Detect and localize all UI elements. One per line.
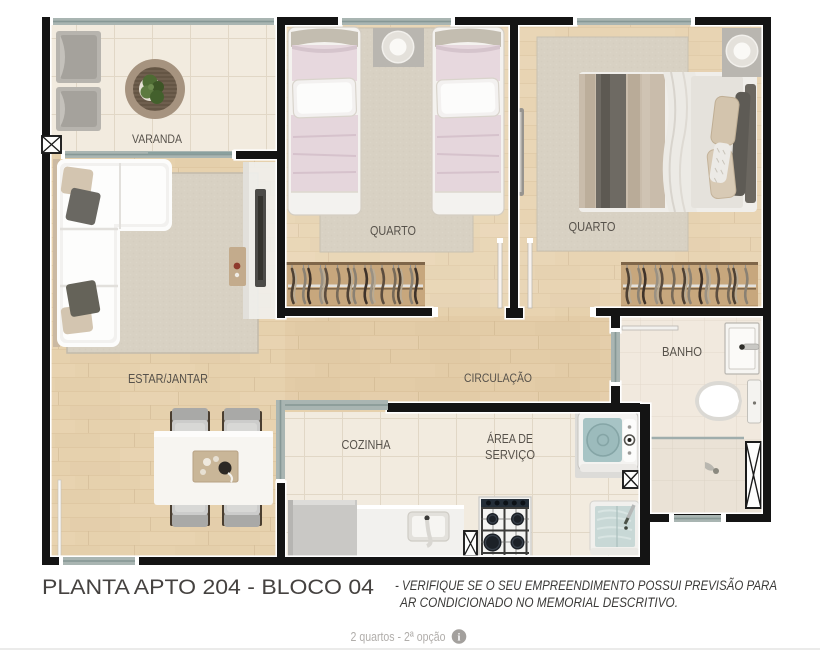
svg-text:PLANTA APTO 204 - BLOCO 04: PLANTA APTO 204 - BLOCO 04 — [42, 575, 374, 599]
svg-text:COZINHA: COZINHA — [342, 438, 392, 452]
svg-text:VARANDA: VARANDA — [132, 134, 182, 146]
svg-text:QUARTO: QUARTO — [569, 220, 616, 234]
svg-text:CIRCULAÇÃO: CIRCULAÇÃO — [464, 372, 532, 385]
svg-text:ESTAR/JANTAR: ESTAR/JANTAR — [128, 372, 208, 386]
svg-text:- VERIFIQUE SE O SEU EMPREENDI: - VERIFIQUE SE O SEU EMPREENDIMENTO POSS… — [395, 577, 777, 594]
svg-text:SERVIÇO: SERVIÇO — [485, 448, 535, 462]
svg-text:AR CONDICIONADO NO MEMORIAL DE: AR CONDICIONADO NO MEMORIAL DESCRITIVO. — [399, 595, 678, 611]
svg-text:2 quartos - 2ª opção: 2 quartos - 2ª opção — [351, 629, 446, 644]
svg-text:BANHO: BANHO — [662, 345, 702, 359]
svg-text:i: i — [458, 633, 461, 644]
svg-text:ÁREA DE: ÁREA DE — [487, 431, 533, 446]
svg-text:QUARTO: QUARTO — [370, 224, 416, 238]
